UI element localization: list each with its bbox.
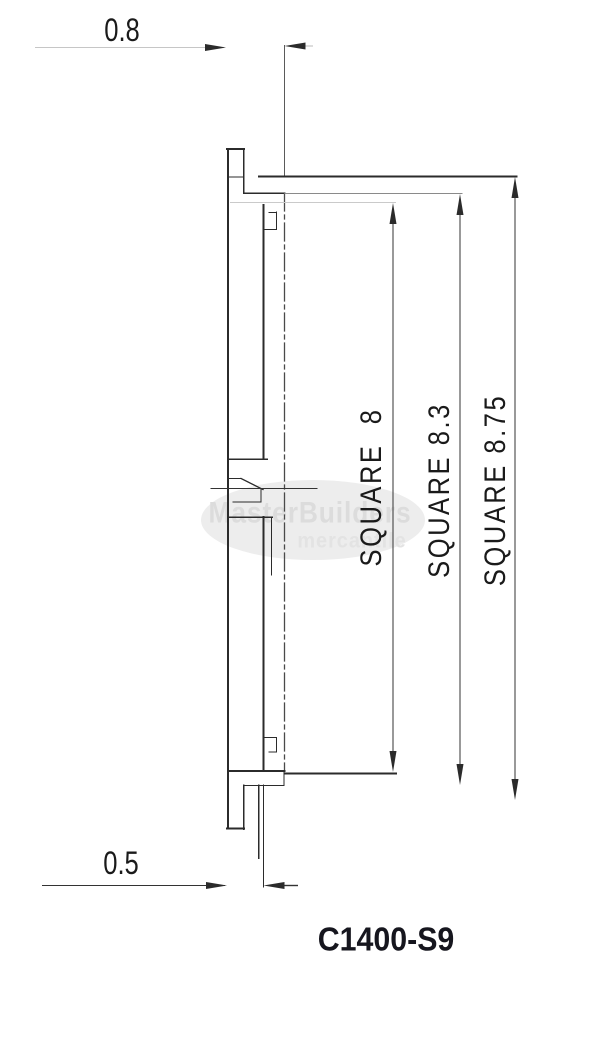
- watermark: MasterBuilders mercantile: [201, 480, 425, 560]
- technical-drawing-page: MasterBuilders mercantile: [0, 0, 600, 1043]
- dim-bottom-arrow-left: [264, 882, 285, 889]
- square-8-label: SQUARE 8: [354, 408, 387, 567]
- drawing-canvas: MasterBuilders mercantile: [0, 0, 600, 1043]
- part-number: C1400-S9: [318, 920, 455, 957]
- square-8-arrow-down: [390, 751, 397, 772]
- square-8-75-arrow-up: [512, 177, 519, 198]
- dim-bottom-arrow-right: [206, 882, 227, 889]
- square-8-75-label: SQUARE 8.75: [478, 394, 511, 586]
- dim-top-arrow-right: [205, 44, 226, 51]
- watermark-subtitle-text: mercantile: [297, 529, 406, 553]
- dimension-top-depth: 0.8: [35, 13, 313, 177]
- dim-top-value: 0.8: [104, 13, 140, 48]
- square-8-3-arrow-up: [457, 194, 464, 215]
- dim-top-arrow-left: [285, 43, 306, 50]
- dimension-bottom-depth: 0.5: [42, 846, 298, 889]
- square-8-arrow-up: [390, 203, 397, 224]
- square-8-75-arrow-down: [512, 779, 519, 800]
- dim-bottom-value: 0.5: [103, 846, 139, 881]
- square-8-3-label: SQUARE 8.3: [422, 402, 455, 578]
- square-8-3-arrow-down: [457, 764, 464, 785]
